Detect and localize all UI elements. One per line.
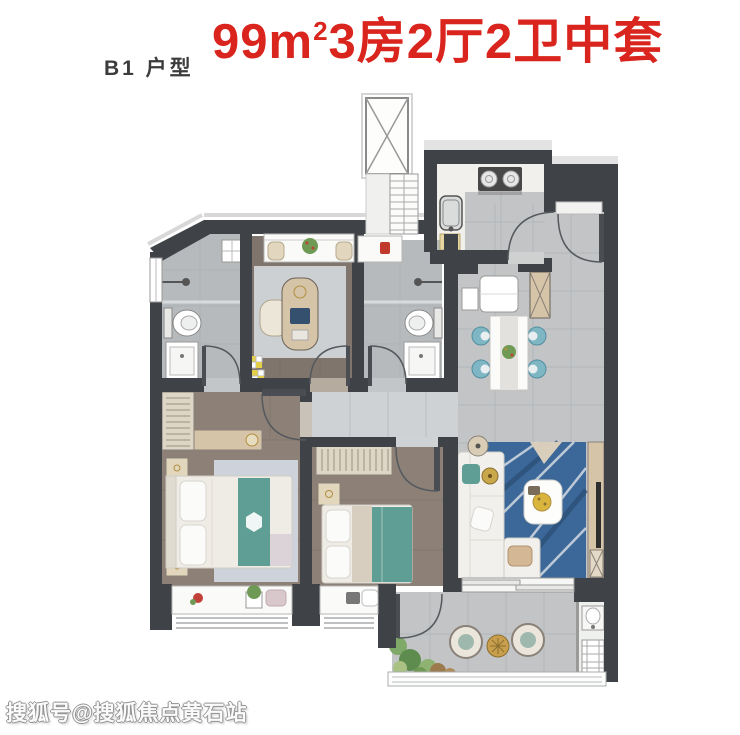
faucet-icon [449,227,454,232]
entry-door-leaf [599,214,604,262]
shower-head-icon [414,278,422,286]
bay-cushion [336,242,352,260]
toilet-tank [434,308,442,338]
bay-pillow [266,590,286,606]
wall-right [604,212,618,682]
wall-kitchen-left [424,150,437,252]
living-room [458,436,604,584]
bay-plant [302,238,318,254]
corridor-floor [312,388,458,437]
drying-rack [582,640,604,674]
faucet-icon [591,625,595,629]
building-core [362,94,418,234]
wall-bedroom2-living [443,437,458,592]
entry-opening [556,202,602,214]
balcony-door-leaf [396,594,400,638]
roof-outline [544,156,618,164]
shower-head-icon [182,278,190,286]
wall-balcony-left [378,584,396,648]
faucet-icon [180,354,184,358]
master-door-opening [300,402,312,437]
balcony-railing [388,672,606,686]
sofa-pillow-tan [508,546,532,566]
pillow [326,546,350,578]
bath1-door-leaf [202,346,206,386]
bedroom2-door-leaf [434,447,440,491]
pillow [180,525,206,565]
wall-bath1-study [240,234,252,392]
wall-left [150,252,162,630]
wall-kitchen-bottom [430,250,508,264]
wall-bedroom2-top [312,437,396,447]
bed-blanket [352,506,372,582]
tv [596,482,601,548]
wall-kitchen-top [424,150,552,164]
burner-icon [481,171,497,187]
master-door-leaf [262,389,306,396]
bay-decor [380,242,390,254]
headboard [166,476,176,568]
study-door-leaf [346,346,350,386]
page: B1 户型 99m23房2厅2卫中套 [0,0,740,735]
bath2-door-leaf [368,346,372,386]
floor-plan [0,0,740,735]
flower-bowl [533,493,551,511]
bed-duvet [372,507,412,582]
wardrobe [316,445,392,475]
wall-bath2-east [444,234,458,392]
watermark: 搜狐号@搜狐焦点黄石站 [6,697,247,727]
laptop [290,308,310,324]
bay-cushion [268,242,284,260]
roof-outline [424,140,552,150]
toilet-tank [164,308,172,338]
pillow [326,510,350,542]
dresser-mirror [246,434,258,446]
table-plant [502,345,516,359]
laundry-divider [576,598,579,676]
wall-bedrooms-divider [300,437,312,586]
burner-icon [503,171,519,187]
bay-pillow [362,590,378,606]
bed-throw [270,534,292,566]
pillow [180,481,206,521]
shoe-bench [462,288,478,310]
nightstand [166,458,188,478]
wardrobe [162,392,194,450]
wall-nook [458,262,478,274]
sofa-pillow-teal [462,464,480,484]
desk-tray [292,330,308,340]
bay-book [346,592,360,604]
stove-knobs [478,191,522,195]
bedroom2-door-opening [396,437,438,447]
faucet-icon [419,354,423,358]
kitchen-opening [508,252,544,264]
nightstand [318,483,340,505]
